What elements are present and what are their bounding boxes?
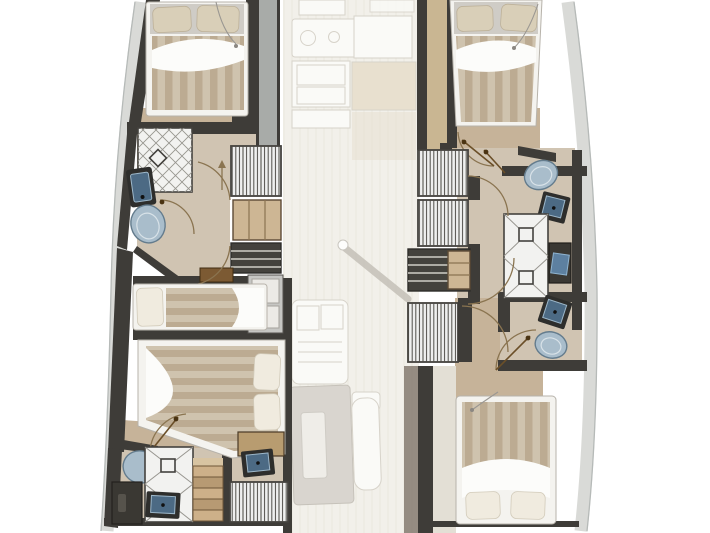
port-fwd-bed <box>146 2 248 116</box>
wall <box>572 150 582 330</box>
pillow <box>253 353 281 390</box>
wall <box>468 176 480 200</box>
stair-rail <box>277 0 280 148</box>
port-hull <box>101 0 292 533</box>
stbd-companionway <box>408 150 472 362</box>
stairs-hatch <box>418 150 468 196</box>
washbasin <box>241 448 276 477</box>
saloon-bench <box>351 398 381 491</box>
wall <box>498 360 587 371</box>
stair-step <box>193 510 223 521</box>
cabinet-handle <box>118 494 126 512</box>
galley-wood-floor <box>352 112 416 160</box>
port-aft-cabin <box>138 340 285 458</box>
slat-locker <box>231 243 281 273</box>
cord-end <box>470 408 474 412</box>
cord-end <box>512 46 516 50</box>
stbd-stairwell <box>427 0 447 150</box>
pillow <box>457 5 494 31</box>
mast-foot <box>338 240 348 250</box>
dark-cabinet <box>112 482 142 524</box>
shower-drain <box>519 271 533 284</box>
port-stairwell <box>259 0 277 148</box>
louver-lines <box>408 303 458 362</box>
port-midship-berth <box>133 284 267 330</box>
door-knob <box>160 200 165 205</box>
washbasin <box>145 491 180 519</box>
saloon-aft-bulkhead-faded <box>404 366 418 533</box>
saloon-dinette <box>290 385 382 505</box>
stbd-aft-cabin <box>456 392 556 524</box>
stair-landing <box>193 458 223 466</box>
door-knob <box>526 336 531 341</box>
stair-step <box>193 477 223 488</box>
pillow <box>511 491 546 519</box>
stair-step <box>193 488 223 499</box>
shelving <box>448 251 470 289</box>
stair-step <box>193 466 223 477</box>
door-knob <box>484 150 489 155</box>
galley-cabinet <box>292 61 350 107</box>
stairs-hatch <box>231 146 281 196</box>
stairs-wood <box>193 458 223 521</box>
shower-drain <box>161 459 175 472</box>
wall <box>417 0 427 150</box>
shower-drain <box>519 228 533 241</box>
washbasin <box>126 167 157 208</box>
starboard-hull <box>408 0 597 533</box>
galley-counter-top <box>299 0 345 15</box>
galley-fridge <box>352 62 416 110</box>
saloon-table-inlay <box>301 412 327 479</box>
floor-plan <box>0 0 710 533</box>
wall <box>458 298 472 362</box>
pillow <box>253 394 280 431</box>
cord-end <box>234 44 238 48</box>
pillow <box>152 6 191 33</box>
louver-lines <box>418 200 468 246</box>
galley-side-counter <box>354 16 412 58</box>
wall <box>418 366 433 533</box>
door-knob <box>462 140 467 145</box>
shelving <box>233 200 281 240</box>
galley-low-counter <box>292 110 350 128</box>
stair-step <box>193 499 223 510</box>
pillow <box>466 491 501 519</box>
shower-tray <box>504 214 548 298</box>
floor-plan-canvas <box>0 0 710 533</box>
louver-lines <box>230 482 288 522</box>
pillow <box>136 288 163 327</box>
vanity-mirror <box>551 253 570 275</box>
saloon-seat-hint <box>370 0 414 12</box>
stair-rail <box>256 0 259 148</box>
stbd-aft-walkway <box>433 366 456 533</box>
bridge-deck-faded <box>283 0 419 533</box>
door-knob <box>174 417 179 422</box>
wall <box>498 302 510 332</box>
